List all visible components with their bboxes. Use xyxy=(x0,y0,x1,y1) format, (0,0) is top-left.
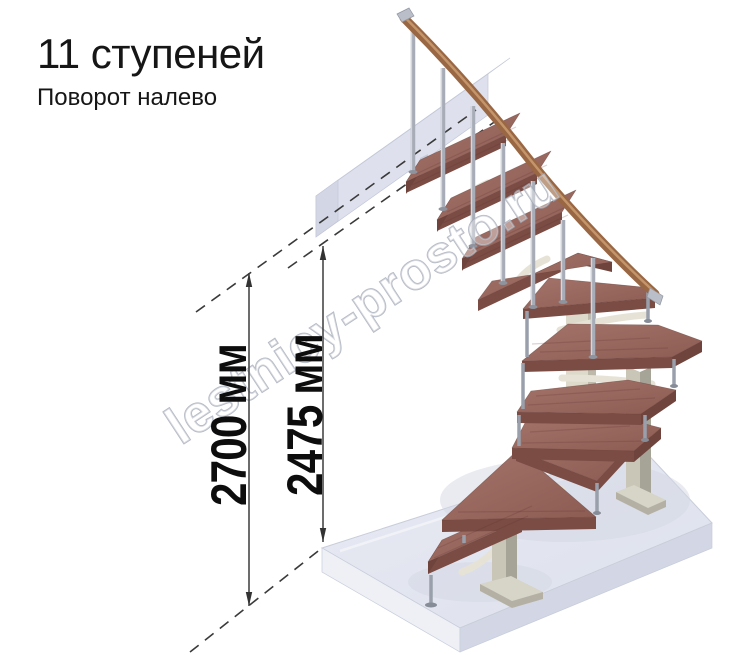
dimension-label-2700: 2700 мм xyxy=(201,344,257,506)
staircase-product-image: 11 ступеней Поворот налево xyxy=(0,0,743,655)
tread-5 xyxy=(517,380,676,425)
dimension-label-2475: 2475 мм xyxy=(277,334,333,496)
dimension-annotations: 2700 мм 2475 мм xyxy=(201,246,333,606)
page-title: 11 ступеней xyxy=(37,30,265,78)
landing-end-face xyxy=(316,180,338,237)
page-subtitle: Поворот налево xyxy=(37,84,217,112)
extension-line-bottom xyxy=(190,548,322,652)
